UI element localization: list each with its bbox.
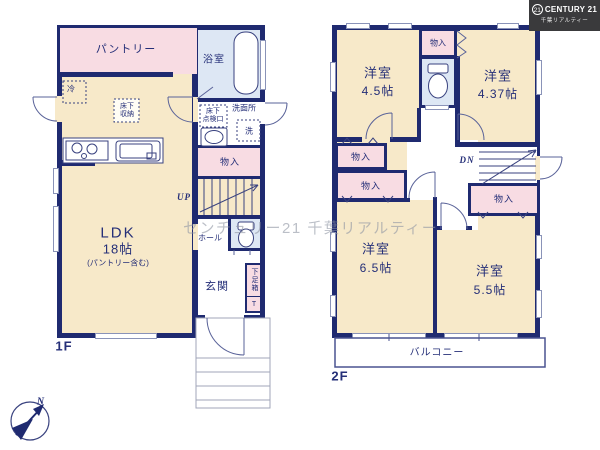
f1-window [53, 168, 59, 194]
f1-door-gap [193, 97, 198, 122]
f2-window [330, 295, 336, 317]
f2-window [388, 23, 412, 29]
compass-north-label: N [37, 396, 45, 408]
f1-window [260, 40, 266, 90]
f2-window [346, 23, 370, 29]
f1-shoebox-label: 下足箱 [250, 268, 258, 292]
floorplan-canvas: パントリー 浴室 冷 床下 収納 床下 点検口 洗面所 洗 物入 UP ホール … [0, 0, 600, 450]
century21-logo: 21 CENTURY 21 千葉リアルティー [529, 0, 600, 31]
f1-ldk-label: LDK [100, 224, 135, 241]
f2-hall [421, 108, 455, 142]
f1-underfloor-hatch-label: 床下 点検口 [203, 108, 224, 124]
f1-kitchen-stub-wall [57, 160, 95, 166]
f2-wall [417, 108, 421, 142]
f1-door-gap [55, 96, 62, 122]
f1-entrance-label: 玄関 [205, 281, 229, 294]
f1-closet-label: 物入 [220, 157, 240, 167]
f1-ldk-note-label: (パントリー含む) [87, 258, 149, 267]
f1-wall [228, 248, 262, 251]
f1-wall [193, 145, 265, 148]
f1-window [53, 206, 59, 252]
f2-closet-top-label: 物入 [430, 38, 446, 47]
f2-room-b-size: 4.37帖 [478, 88, 518, 102]
logo-brand-name: CENTURY 21 [545, 5, 597, 14]
f1-underfloor-storage-label: 床下 収納 [120, 103, 134, 119]
f2-stairwell [478, 146, 537, 186]
f2-closet-left-2-label: 物入 [361, 181, 381, 191]
f2-room-c-size: 6.5帖 [360, 262, 393, 276]
logo-badge-21: 21 [532, 4, 543, 15]
f2-wall [455, 56, 460, 145]
f2-room-d-size: 5.5帖 [474, 284, 507, 298]
f2-wall [332, 137, 362, 142]
f2-toilet-room [419, 56, 457, 108]
watermark-text: センチュリー21 千葉リアルティー [183, 217, 438, 238]
f1-porch-steps [196, 318, 270, 408]
f2-wall [466, 226, 472, 230]
f1-wall [193, 98, 265, 102]
f2-window [536, 235, 542, 259]
f1-pantry-label: パントリー [96, 44, 157, 57]
f1-door-gap [260, 102, 265, 124]
f1-fridge-label: 冷 [67, 84, 75, 93]
f1-wall [57, 72, 173, 77]
f2-window [497, 23, 519, 29]
f1-wall [193, 176, 265, 179]
f2-floor-label: 2F [331, 370, 348, 385]
f2-window [330, 62, 336, 92]
f2-closet-right-label: 物入 [494, 194, 514, 204]
f1-floor-label: 1F [55, 340, 72, 355]
f1-shoebox-t-label: T [252, 301, 256, 309]
f1-washroom-label: 洗面所 [232, 103, 256, 112]
f1-door-gap [205, 313, 244, 318]
f2-wall [390, 137, 420, 142]
f2-room-a-size: 4.5帖 [362, 85, 395, 99]
f2-window [444, 333, 518, 339]
f2-wall [455, 142, 540, 147]
f2-wall [455, 25, 460, 31]
f2-room-b-name: 洋室 [484, 70, 512, 85]
f2-toilet-door-gap [425, 105, 449, 110]
f2-window [536, 60, 542, 95]
f2-closet-left-1-label: 物入 [351, 152, 371, 162]
f1-ldk-size-label: 18帖 [103, 243, 133, 258]
logo-subtitle: 千葉リアルティー [529, 16, 600, 24]
f1-washer-label: 洗 [245, 126, 253, 135]
f1-window [95, 333, 157, 339]
f1-bath-label: 浴室 [203, 54, 225, 66]
f2-window [352, 333, 426, 339]
f2-room-d-name: 洋室 [476, 265, 504, 280]
f2-balcony-label: バルコニー [410, 347, 465, 359]
f2-room-a-name: 洋室 [364, 67, 392, 82]
f2-wall [332, 198, 410, 202]
f2-window [536, 290, 542, 318]
f1-shoebox-divider [246, 296, 261, 297]
f1-up-label: UP [177, 192, 191, 202]
f2-dn-label: DN [460, 155, 475, 165]
f2-door-gap [535, 156, 540, 180]
f2-room-c-name: 洋室 [362, 243, 390, 258]
